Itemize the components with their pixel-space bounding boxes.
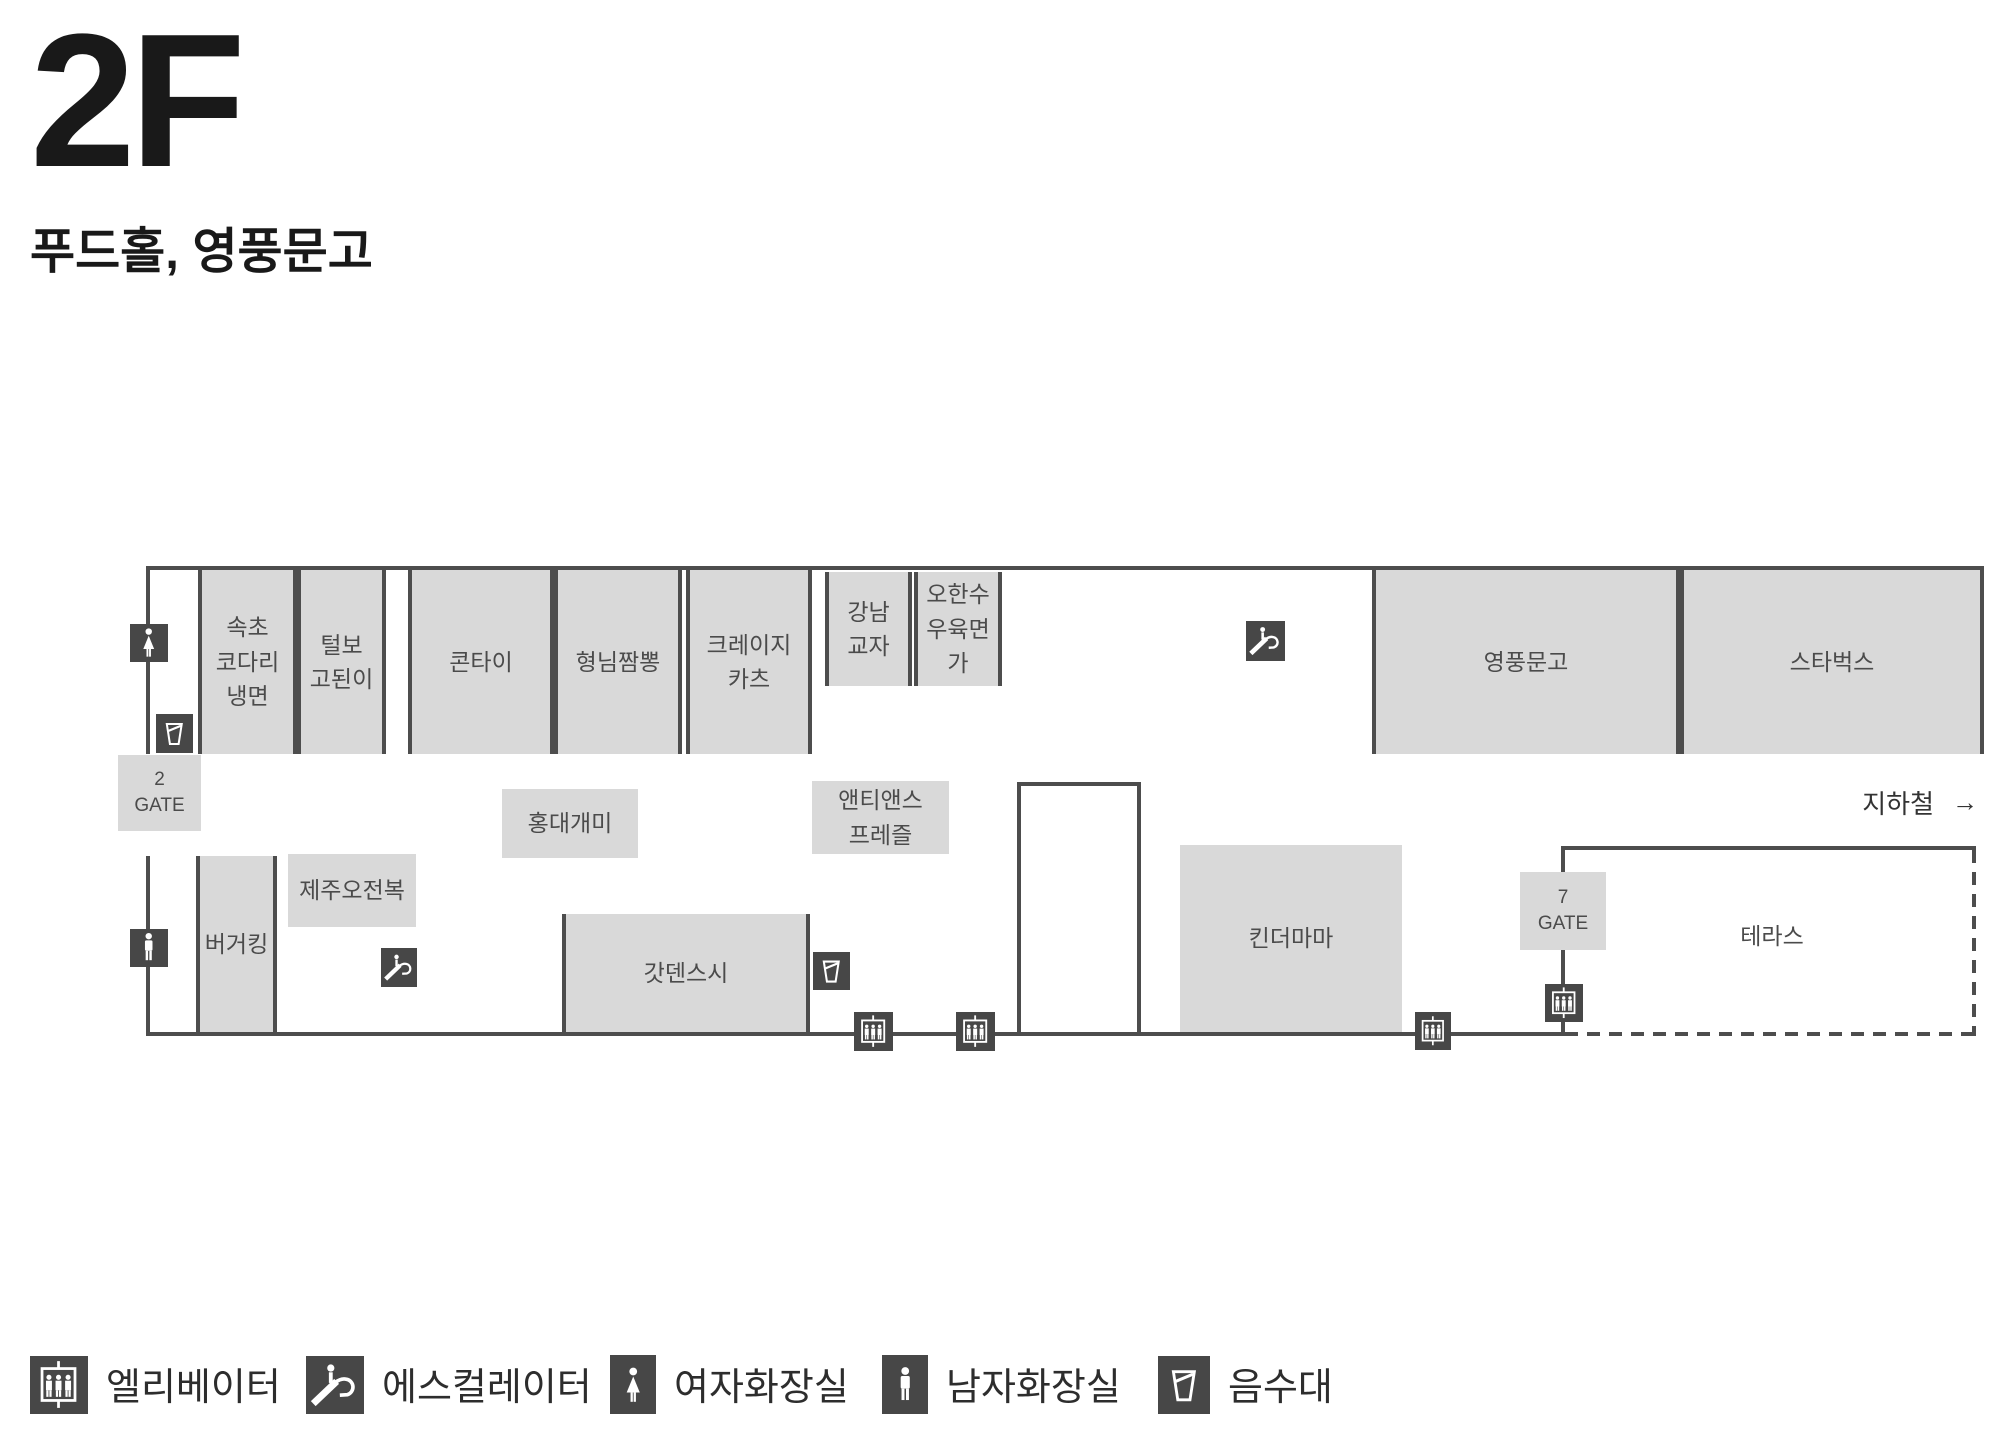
female-restroom-icon — [610, 1355, 656, 1414]
escalator-icon — [306, 1356, 364, 1414]
corridor-wall-right — [1137, 782, 1141, 1036]
elevator-icon — [956, 1012, 995, 1051]
gate-label: 7 GATE — [1538, 885, 1588, 936]
store-auntie-annes-pretzel: 앤티앤스 프레즐 — [812, 781, 949, 854]
store-gangnam-gyoja: 강남 교자 — [825, 572, 912, 686]
legend-label-escalator: 에스컬레이터 — [382, 1366, 592, 1412]
corridor-wall-left — [1017, 782, 1021, 1036]
store-label: 형님짬뽕 — [576, 645, 661, 680]
escalator-icon — [1246, 621, 1285, 661]
store-hyungnim-jjamppong: 형님짬뽕 — [554, 570, 682, 754]
terrace-label: 테라스 — [1740, 917, 1803, 951]
store-youngpoong-bookstore: 영풍문고 — [1372, 570, 1680, 754]
legend-label-male-restroom: 남자화장실 — [946, 1366, 1121, 1412]
subway-label: 지하철 — [1862, 784, 1934, 821]
elevator-icon — [854, 1012, 893, 1051]
store-label: 오한수 우육면가 — [918, 577, 998, 681]
water-fountain-icon — [1158, 1356, 1210, 1414]
store-label: 강남 교자 — [847, 595, 889, 664]
terrace-wall-right-dashed — [1972, 850, 1976, 1036]
floor-title: 2F — [30, 6, 240, 196]
floorplan-2f-page: 2F 푸드홀, 영풍문고 속초 코다리 냉면 털보 고된이 콘타이 형님짬뽕 크… — [0, 0, 2000, 1444]
store-kontai: 콘타이 — [408, 570, 554, 754]
store-label: 갓덴스시 — [644, 956, 729, 991]
store-sokcho-kodari-naengmyeon: 속초 코다리 냉면 — [198, 570, 297, 754]
store-jeju-ojeonbok: 제주오전복 — [288, 854, 416, 927]
water-fountain-icon — [156, 714, 193, 753]
male-restroom-icon — [882, 1355, 928, 1414]
female-restroom-icon — [130, 624, 168, 662]
store-burger-king: 버거킹 — [196, 856, 277, 1032]
store-label: 속초 코다리 냉면 — [216, 610, 279, 714]
floor-subtitle: 푸드홀, 영풍문고 — [30, 222, 373, 283]
terrace-wall-bottom-dashed — [1565, 1032, 1976, 1036]
legend-label-female-restroom: 여자화장실 — [674, 1366, 849, 1412]
store-label: 스타벅스 — [1790, 645, 1875, 680]
gate-2: 2 GATE — [118, 755, 201, 831]
gate-label: 2 GATE — [134, 767, 184, 818]
store-label: 제주오전복 — [299, 873, 405, 908]
escalator-icon — [381, 948, 417, 987]
store-label: 홍대개미 — [528, 806, 613, 841]
store-starbucks: 스타벅스 — [1680, 570, 1984, 754]
store-hongdae-gaemi: 홍대개미 — [502, 789, 638, 858]
elevator-icon — [30, 1356, 88, 1414]
legend-label-elevator: 엘리베이터 — [106, 1366, 281, 1412]
store-label: 앤티앤스 프레즐 — [838, 783, 923, 852]
store-teolbo-godoeni: 털보 고된이 — [297, 570, 386, 754]
store-gatten-sushi: 갓덴스시 — [562, 914, 810, 1032]
water-fountain-icon — [813, 952, 850, 990]
store-label: 버거킹 — [205, 927, 268, 962]
store-label: 킨더마마 — [1249, 921, 1334, 956]
store-crazy-katsu: 크레이지 카츠 — [686, 570, 812, 754]
elevator-icon — [1545, 984, 1583, 1022]
store-label: 콘타이 — [449, 645, 512, 680]
terrace-wall-top — [1561, 846, 1976, 850]
store-label: 영풍문고 — [1484, 645, 1569, 680]
legend-label-water-fountain: 음수대 — [1228, 1366, 1333, 1412]
right-arrow-icon: → — [1952, 787, 1978, 818]
store-label: 크레이지 카츠 — [707, 628, 792, 697]
male-restroom-icon — [130, 929, 168, 967]
store-kinder-mama: 킨더마마 — [1180, 845, 1402, 1032]
corridor-wall-top — [1017, 782, 1141, 786]
store-ohansu-wooyukmyeonga: 오한수 우육면가 — [914, 572, 1002, 686]
subway-note: 지하철 → — [1862, 784, 1978, 821]
store-label: 털보 고된이 — [310, 628, 373, 697]
elevator-icon — [1415, 1012, 1451, 1050]
gate-7: 7 GATE — [1520, 872, 1606, 950]
